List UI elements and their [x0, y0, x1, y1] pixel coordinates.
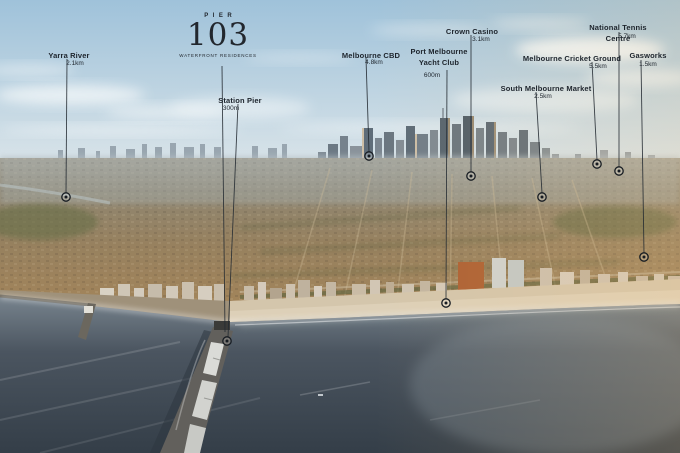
- landmark-distance-port-melbourne-yacht-club: 600m: [424, 72, 440, 79]
- landmark-distance-south-melbourne-market: 2.5km: [534, 93, 552, 100]
- landmark-label-gasworks: Gasworks: [629, 51, 666, 62]
- landmark-distance-crown-casino: 3.1km: [472, 36, 490, 43]
- landmark-distance-melbourne-cricket-ground: 5.5km: [589, 63, 607, 70]
- landmark-labels: Yarra River2.1kmStation Pier300mMelbourn…: [0, 0, 680, 453]
- brand-subtitle: WATERFRONT RESIDENCES: [153, 53, 283, 58]
- landmark-distance-station-pier: 300m: [223, 105, 239, 112]
- landmark-distance-yarra-river: 2.1km: [66, 60, 84, 67]
- brand-logo: PIER 103 WATERFRONT RESIDENCES: [153, 13, 283, 58]
- aerial-photo-poster: Yarra River2.1kmStation Pier300mMelbourn…: [0, 0, 680, 453]
- landmark-distance-melbourne-cbd: 4.8km: [365, 59, 383, 66]
- landmark-distance-gasworks: 1.5km: [639, 61, 657, 68]
- brand-number: 103: [153, 20, 283, 51]
- landmark-distance-national-tennis-centre: 5.7km: [618, 33, 636, 40]
- landmark-label-port-melbourne-yacht-club: Port Melbourne Yacht Club: [410, 47, 467, 68]
